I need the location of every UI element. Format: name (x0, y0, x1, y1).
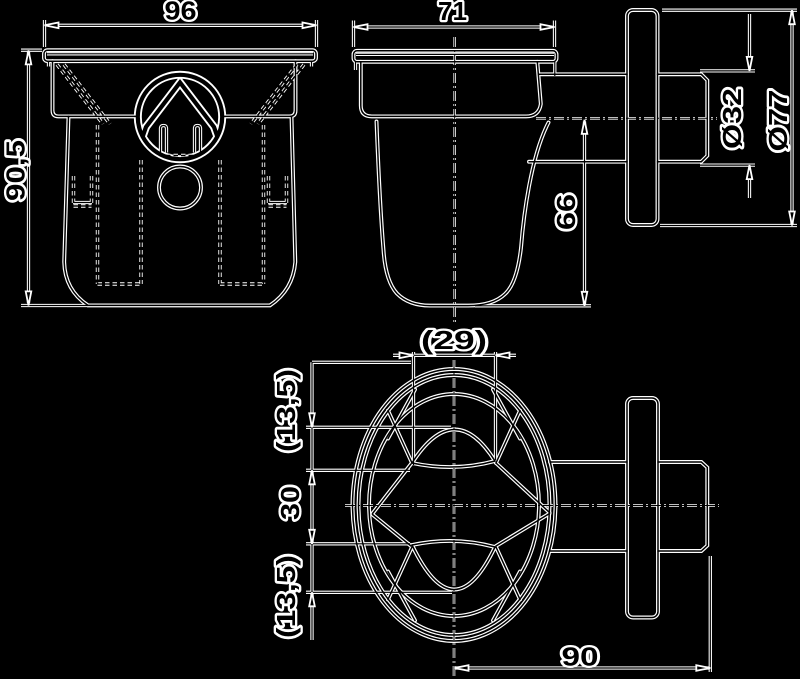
svg-text:30: 30 (275, 486, 305, 520)
svg-text:90,5: 90,5 (0, 140, 30, 201)
svg-text:(13,5): (13,5) (271, 555, 301, 638)
svg-text:90: 90 (562, 641, 599, 671)
svg-text:66: 66 (551, 194, 581, 230)
svg-text:(13,5): (13,5) (271, 369, 301, 452)
svg-text:Ø32: Ø32 (717, 88, 747, 149)
svg-text:Ø77: Ø77 (763, 90, 793, 152)
svg-text:71: 71 (438, 0, 467, 26)
svg-text:(29): (29) (421, 325, 487, 355)
svg-text:96: 96 (165, 0, 197, 25)
